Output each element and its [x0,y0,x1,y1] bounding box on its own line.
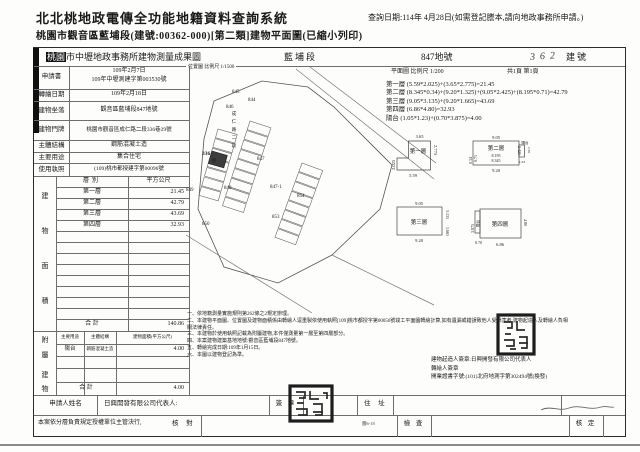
info-label: 轉繪日期 [34,91,69,99]
table-line [56,319,189,320]
plan-label: 第二層 [488,144,505,152]
info-value: 109年中壢測建字第003530號 [69,77,189,84]
lane-number: 336 [202,151,211,157]
area-total-label: 合 計 [56,321,128,328]
table-line [34,89,189,90]
table-line [34,152,189,153]
floor-name: 第二層 [56,200,128,207]
dim-label: 1.665 [445,227,450,236]
floor-area: 21.45 [128,189,184,196]
map-road [186,235,312,313]
plan-second-floor: 9.05 第二層 8.195 8.345 0.34 0.71 9.20 2.42… [468,135,531,173]
info-label: 使用執照 [34,166,69,174]
dim-label: 6.86 [496,242,505,247]
info-value: (109)桃市都授建字第00096號 [69,166,189,173]
info-label: 建物門牌 [34,126,69,134]
balcony-label: 陽台 [522,140,530,145]
approve-label: 核 定 [569,420,603,428]
dim-label: 9.05 [492,135,501,140]
table-line [56,344,189,345]
table-line [56,264,189,265]
side-label-char: 物 [34,226,56,236]
info-value: 觀音區藍埔段847地號 [69,107,189,114]
street-name-char: 成 [232,110,237,117]
street-name-char: 二 [232,135,237,140]
applicant-name: 日興開發有限公司代表人: [104,400,177,408]
delegation-note: 本案依分層負責規定授權單位主管決行, [38,420,142,427]
info-value: 鋼筋混凝土造 [69,142,189,149]
office-prefix: 桃園 [46,52,66,62]
table-line [56,286,189,287]
info-value: 集合住宅 [69,154,189,161]
table-line [56,220,189,221]
side-label-char: 建 [34,370,56,380]
applicant-label: 申請人姓名 [34,400,97,408]
lot-number: 849 [186,188,194,193]
table-line [603,415,604,437]
table-line [56,231,189,232]
floor-plans: 3.65 2.775 2.025 5.59 第一層 9.05 第二層 8.195… [389,127,563,263]
seal-stamp-icon [496,313,536,356]
annex-header-structure: 主體結構 [84,335,116,340]
query-date: 查詢日期:114年 4月28日(如需登記謄本,請向地政事務所申請。) [368,13,583,23]
side-label-char: 物 [34,384,56,394]
formula-line: 陽台 (1.05*1.23)+(0.70*3.875)=4.00 [386,115,568,123]
plan-label: 第三層 [411,218,428,226]
office-title: 桃園市中壢地政事務所建物測量成果圖 [46,52,201,63]
area-header-sqm: 平方公尺 [128,178,189,185]
license-number: 開業證書字號:(101)北府地測字第302494號(換發) [431,373,547,382]
floor-name: 第四層 [56,222,128,229]
document-subtitle: 桃園市觀音區藍埔段(建號:00362-000)[第二類]建物平面圖(已縮小列印) [36,27,363,42]
table-line [34,163,189,164]
table-line [201,415,202,437]
info-label: 主要用途 [34,154,69,162]
floor-area: 43.69 [128,211,184,218]
street-name-char: 巷 [212,158,217,163]
formula-line: 第二層 (8.345*0.34)+(9.20*1.325)+(9.05*2.42… [386,89,568,97]
dim-label: 9.20 [492,168,501,173]
plan-label: 第四層 [492,220,509,228]
area-formulas: 第一層 (5.59*2.025)+(3.65*2.775)=21.45 第二層 … [386,81,568,123]
section-name: 藍埔段 [284,52,317,63]
table-line [56,209,189,210]
annex-use: 陽台 [56,346,84,353]
plan-label: 第一層 [410,147,427,155]
plan-fourth-floor: 3.875 陽台 0.70 第四層 6.86 4.80 [470,209,528,247]
table-line [56,198,189,199]
formula-line: 第四層 (6.86*4.80)=32.93 [386,106,568,114]
dim-label: 9.05 [415,201,424,206]
floor-area: 32.93 [128,222,184,229]
annex-structure: 鋼筋混凝土造 [84,347,116,352]
info-value: 109年2月18日 [69,91,189,98]
balcony-label: 陽台 [475,220,480,227]
dim-label: 9.20 [415,238,424,243]
builder-signature: 建物起造人簽章:日興開發有限公司代表人 [431,356,547,365]
table-line [56,187,189,188]
table-line [56,253,189,254]
street-name-char: 路 [232,126,237,133]
side-label-char: 屬 [34,350,56,360]
lot-number: 846 [226,105,234,110]
table-line [393,395,394,415]
side-label-char: 附 [34,335,56,345]
dim-label: 1.05 [527,147,531,153]
office-title-text: 市中壢地政事務所建物測量成果圖 [66,52,201,62]
table-line [34,120,189,121]
dim-label: 4.80 [523,219,528,226]
dim-label: 2.425 [517,146,522,155]
info-value: 109年2月7日 [69,68,189,75]
signature-block: 建物起造人簽章:日興開發有限公司代表人 轉繪人簽章 開業證書字號:(101)北府… [431,356,547,382]
table-line [56,382,189,383]
plan-third-floor: 9.05 第三層 9.20 3.135 1.665 [397,201,450,243]
page-bottom-edge [0,444,640,446]
annex-total-label: 合 計 [56,385,116,392]
dim-label: 2.025 [391,159,396,170]
lot-number: 848 [224,186,232,191]
table-line [34,331,189,332]
lot-number: 845 [232,90,240,95]
page-count: 共1頁 第1頁 [507,69,539,76]
table-line [56,368,189,369]
table-line [34,140,189,141]
table-line [34,101,189,102]
formula-line: 第三層 (9.05*3.135)+(9.20*1.665)=43.69 [386,98,568,106]
address-label: 住 址 [364,400,388,408]
side-label-char: 建 [34,191,56,201]
annex-total: 4.00 [116,385,184,392]
side-label-char: 積 [34,296,56,306]
review-label: 核 對 [172,420,196,428]
table-line [431,415,432,437]
table-line [357,395,358,415]
inspect-label: 檢 查 [397,420,431,428]
lot-number: 854 [297,194,305,199]
table-line [34,176,189,177]
seal-stamp-icon [288,384,334,423]
annex-area: 4.00 [116,346,184,353]
building-row [275,163,323,245]
dim-label: 3.65 [416,134,425,139]
transcriber-signature: 轉繪人簽章 [431,365,547,374]
dim-label: 0.71 [473,155,478,162]
table-line [97,395,98,415]
floor-area: 42.79 [128,200,184,207]
side-label-char: 面 [34,261,56,271]
table-line [56,356,189,357]
dim-label: 8.345 [492,158,501,163]
info-label: 申請書 [34,73,69,81]
table-line [56,275,189,276]
dim-label: 2.775 [433,145,438,156]
dim-label: 3.875 [470,224,475,233]
parcel-number: 847地號 [421,52,453,63]
document-page: 北北桃地政電傳全功能地籍資料查詢系統 桃園市觀音區藍埔段(建號:00362-00… [0,0,640,452]
building-number-handwritten: 362 [530,50,561,63]
lot-number: 847-1 [270,185,282,190]
info-label: 主體結構 [34,142,69,150]
lot-number: 847 [257,157,265,162]
lot-number: 844 [248,98,256,103]
dim-label: 1.23 [519,160,525,164]
building-number-label: 建號 [566,52,588,63]
table-line [56,297,189,298]
dim-label: 5.59 [409,173,418,178]
figure-reference: 圖6-18 [362,422,375,427]
dim-label: 3.135 [445,210,450,219]
info-label: 建物坐落 [34,107,69,115]
street-name-char: 仁 [232,118,237,124]
handwriting-mark [539,402,615,414]
survey-result-form: 桃園市中壢地政事務所建物測量成果圖 藍埔段 847地號 362 建號 位置圖 比… [33,47,626,437]
building-row [222,121,270,212]
dim-label: 0.70 [475,240,482,245]
floor-name: 第一層 [56,189,128,196]
table-line [56,308,189,309]
table-line [56,242,189,243]
area-header-floor: 層別 [56,178,128,185]
lot-number: 850 [202,222,210,227]
plan-first-floor: 3.65 2.775 2.025 5.59 第一層 [391,134,438,178]
annex-header-area: 建物面積(平方公尺) [116,335,189,340]
lot-number: 853 [272,215,280,220]
info-value: 桃園市觀音區成仁路二段336巷29號 [69,127,189,134]
annex-header-use: 主要用途 [56,335,84,340]
street-name-char: 段 [232,142,237,149]
system-title: 北北桃地政電傳全功能地籍資料查詢系統 [36,8,288,27]
area-total: 140.86 [128,321,184,328]
floor-name: 第三層 [56,211,128,218]
